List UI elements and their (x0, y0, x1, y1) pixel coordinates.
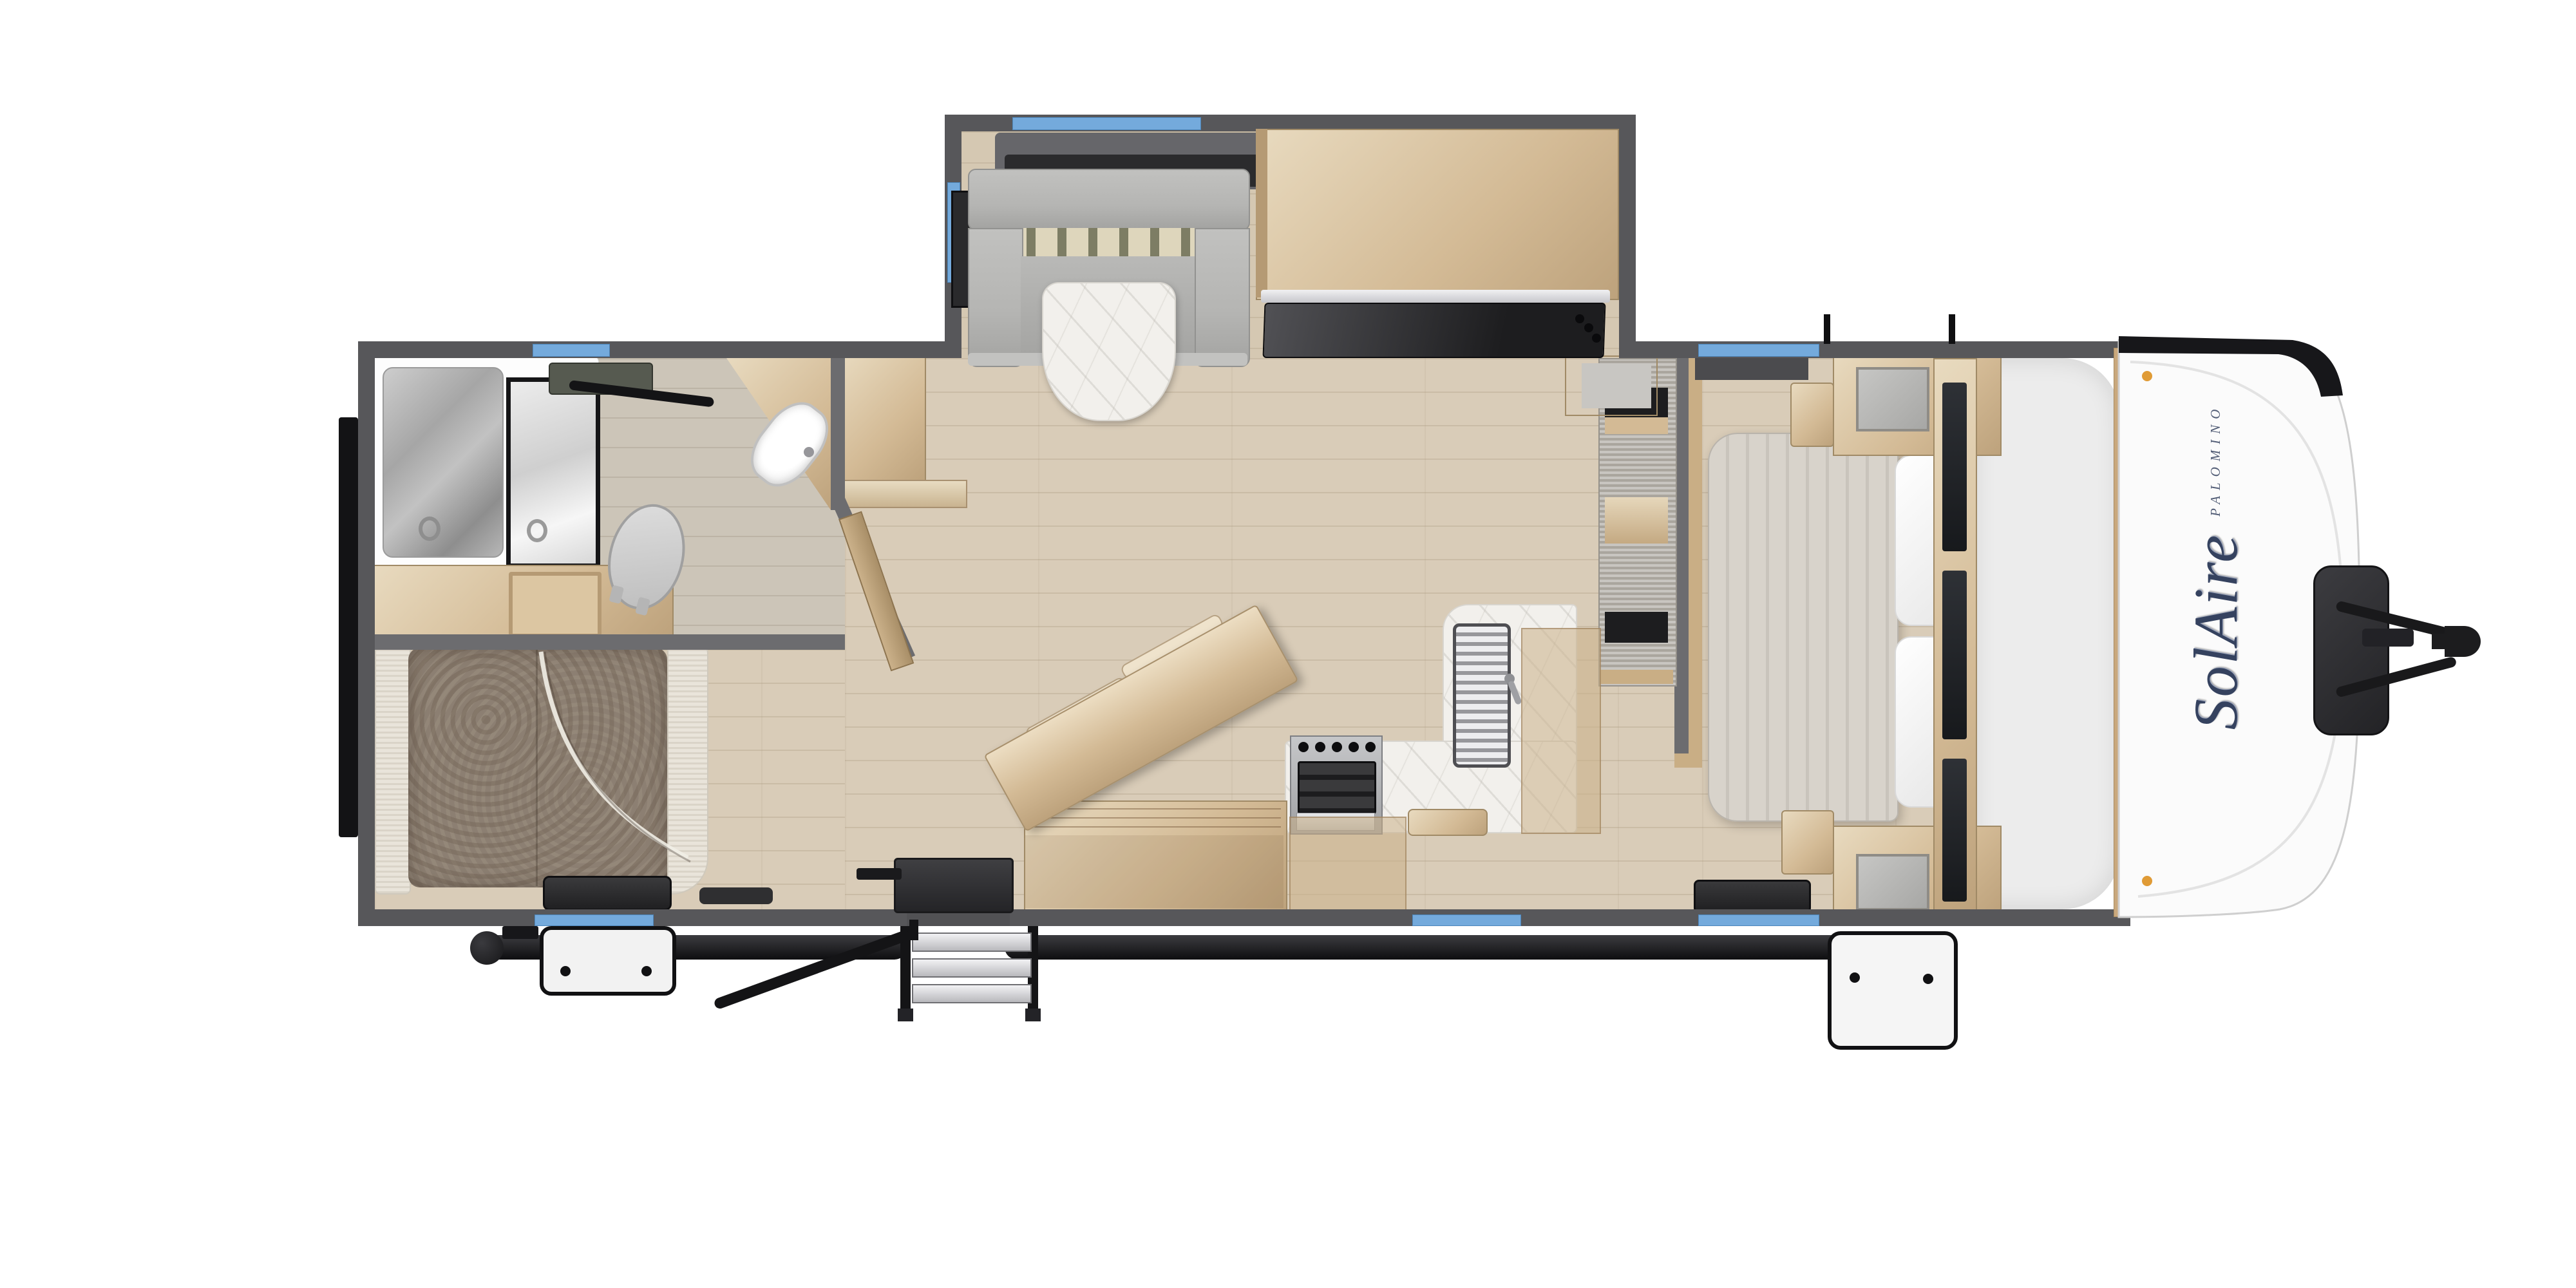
awning-tube-front (1005, 935, 1855, 960)
roof-post-2 (1949, 314, 1955, 344)
mount-plate (540, 926, 676, 996)
step-foot-2 (1025, 1009, 1041, 1021)
brand-maker-text: PALOMINO (2208, 404, 2224, 516)
hitch-jack (2362, 629, 2414, 647)
marker-light-2 (2142, 876, 2152, 886)
awning-end-cap (470, 931, 504, 965)
step-tread-3 (912, 984, 1032, 1003)
plate-bolt-4 (1923, 974, 1933, 984)
rear-bumper (339, 417, 358, 837)
hitch-coupler-stem (2432, 634, 2452, 649)
brand-logo: SolAire PALOMINO (2177, 386, 2254, 747)
floorplan-stage: SolAire PALOMINO (0, 0, 2576, 1288)
brand-logo-text: SolAire (2180, 533, 2251, 730)
sofa-piping (541, 652, 688, 858)
plate-bolt-2 (641, 966, 652, 976)
marker-light (2142, 371, 2152, 381)
sofa-piping-shadow (545, 652, 690, 862)
awning-bracket (502, 926, 538, 939)
step-tread-2 (912, 958, 1032, 978)
propane-tank-cover (2313, 565, 2389, 735)
plate-bolt (560, 966, 571, 976)
step-handrail-post (909, 920, 918, 940)
step-foot (898, 1009, 913, 1021)
step-tread (912, 933, 1032, 952)
mount-plate-2 (1828, 931, 1958, 1050)
plate-bolt-3 (1850, 972, 1860, 983)
roof-post (1824, 314, 1830, 344)
